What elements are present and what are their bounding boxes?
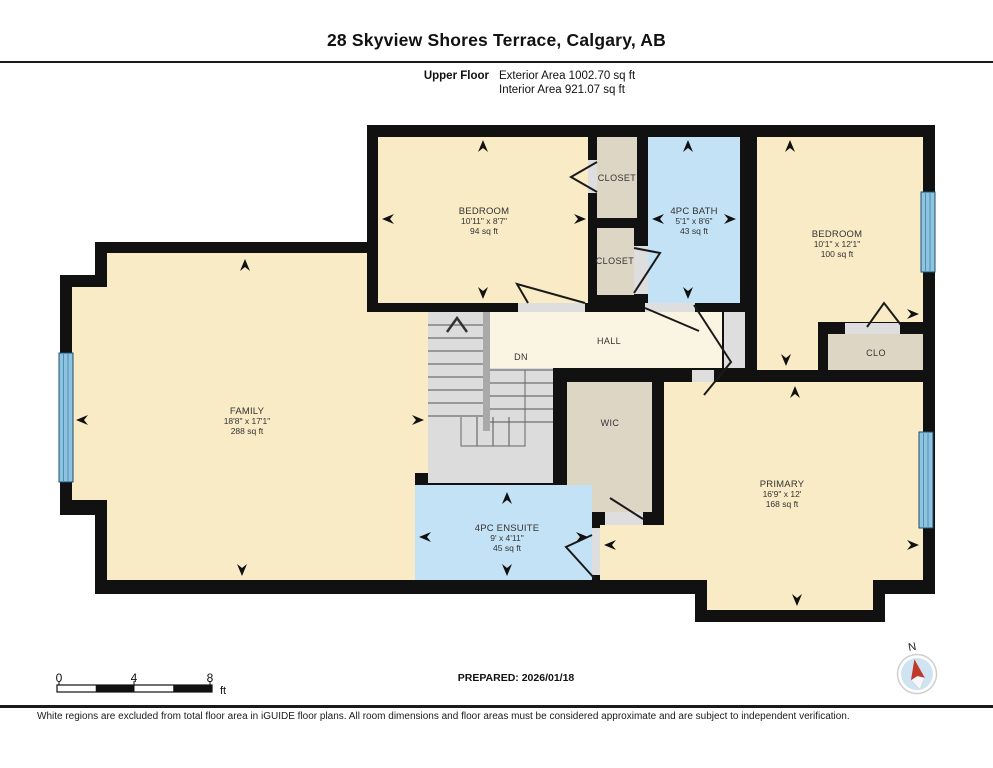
footer-divider [0,705,993,708]
north-label: N [907,641,917,654]
scale-bar: 0 4 8 ft [56,671,226,697]
floorplan-page: 28 Skyview Shores Terrace, Calgary, AB U… [0,0,993,768]
room-label: WIC [601,418,620,428]
room-dims: 9' x 4'11" [490,533,524,543]
room-label: CLOSET [598,173,637,183]
room-area: 288 sq ft [231,426,264,436]
room-area: 168 sq ft [766,499,799,509]
compass: N [892,638,940,696]
room-label: CLO [866,348,886,358]
room-label: HALL [597,336,621,346]
room-area: 43 sq ft [680,226,709,236]
window [921,192,935,272]
window [59,353,73,482]
window [919,432,933,528]
room-dims: 16'9" x 12' [763,489,802,499]
room-dims: 18'8" x 17'1" [224,416,271,426]
room-area: 100 sq ft [821,249,854,259]
floor-plan: BEDROOM 10'11" x 8'7" 94 sq ft 4PC BATH … [0,0,993,768]
prepared-date: PREPARED: 2026/01/18 [380,672,652,684]
room-area: 94 sq ft [470,226,499,236]
room-dims: 10'11" x 8'7" [461,216,507,226]
room-dims: 10'1" x 12'1" [814,239,861,249]
room-area: 45 sq ft [493,543,522,553]
scale-unit: ft [220,685,226,697]
disclaimer-text: White regions are excluded from total fl… [37,711,967,722]
stairs-dn-label: DN [514,352,528,362]
room-dims: 5'1" x 8'6" [675,216,712,226]
room-label: CLOSET [596,256,635,266]
